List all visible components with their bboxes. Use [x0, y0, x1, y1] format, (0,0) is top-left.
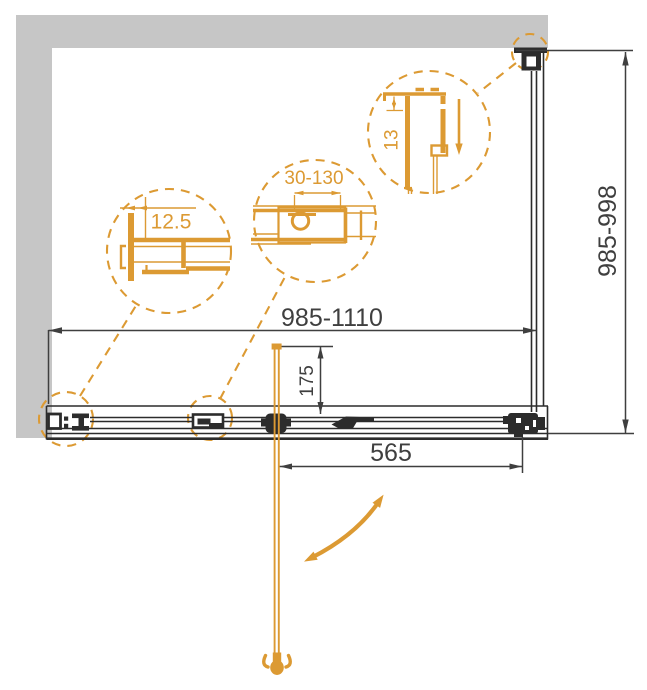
enclosure-structure [47, 48, 635, 474]
detail-adjustment-label: 30-130 [284, 168, 343, 189]
door-handle [264, 653, 291, 676]
dimension-arrowheads [49, 52, 629, 470]
bottom-track [47, 406, 549, 440]
leader-line-wall-profile [80, 304, 137, 396]
door-width-dimension-label: 565 [370, 439, 412, 467]
track-rails [47, 406, 549, 440]
door-swing-arrow-icon [304, 495, 384, 562]
door-bar [275, 346, 279, 658]
walls [16, 15, 548, 438]
shower-enclosure-drawing: 985-1110 985-998 175 565 12.5 30-130 [0, 0, 647, 690]
door-handle-plan [332, 417, 375, 430]
detail1-notch [121, 246, 126, 268]
wall-left [16, 15, 52, 438]
roller-carriage [193, 415, 223, 428]
side-panel-edge [532, 53, 544, 412]
detail-adjustment-profile [251, 191, 376, 244]
leader-line-adjustment [220, 275, 286, 399]
depth-dimension-label: 985-998 [594, 185, 622, 277]
wall-top [16, 15, 548, 48]
door-top-cap [272, 344, 282, 350]
open-door [264, 344, 384, 676]
door-pivot-block [261, 414, 291, 434]
detail-top-gap-label: 13 [382, 129, 403, 150]
track-left-cap [49, 414, 61, 429]
detail2-profile-body [279, 208, 346, 243]
detail-wall-gap-label: 12.5 [151, 211, 192, 234]
width-dimension-label: 985-1110 [281, 304, 383, 332]
leader-line-top-profile [478, 63, 516, 93]
door-inset-dimension-label: 175 [297, 365, 318, 397]
drawing-canvas: 985-1110 985-998 175 565 12.5 30-130 [0, 0, 647, 690]
bracket-hole [527, 57, 537, 67]
